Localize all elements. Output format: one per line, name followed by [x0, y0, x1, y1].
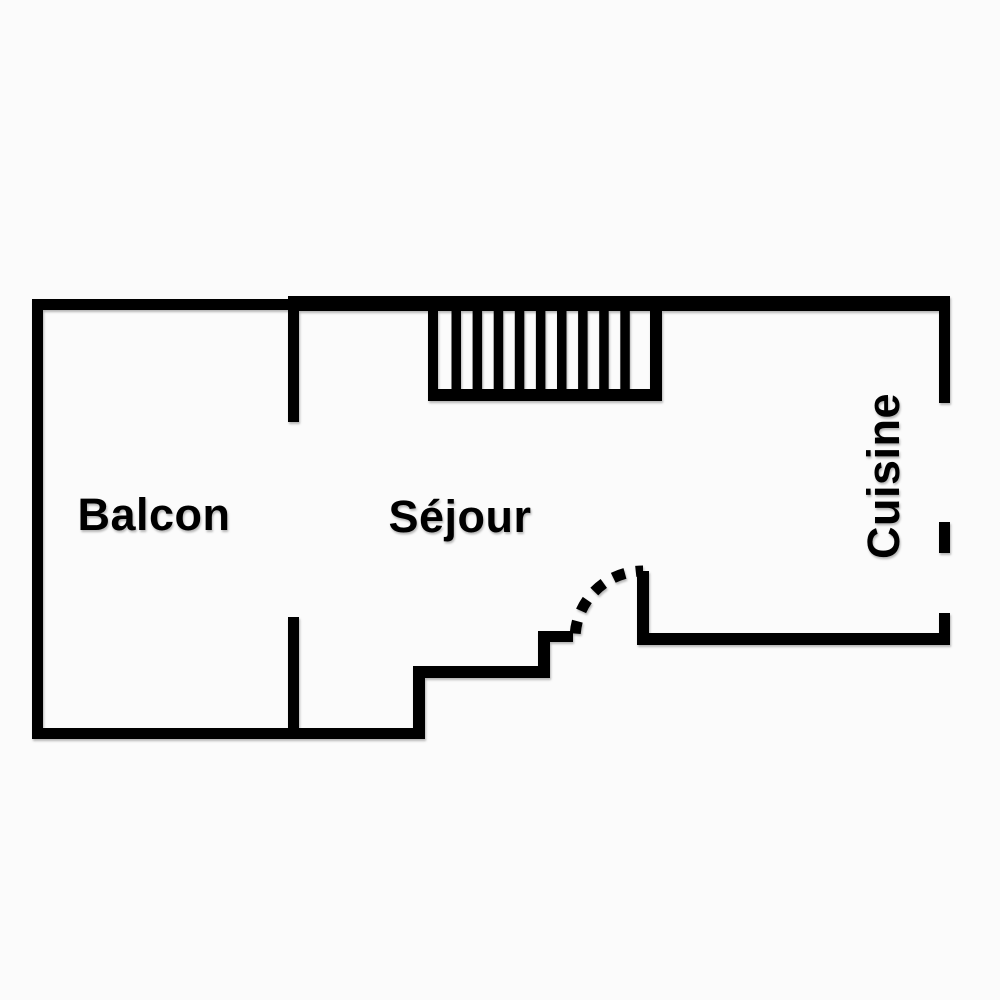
floor-plan-walls: Balcon Séjour Cuisine — [32, 296, 950, 739]
bottom-wall-right — [637, 633, 950, 645]
door-swing-arc — [575, 571, 643, 639]
room-label-sejour: Séjour — [388, 491, 531, 542]
room-label-balcon: Balcon — [77, 489, 230, 540]
step-wall-horizontal-upper — [538, 631, 573, 642]
room-label-cuisine: Cuisine — [858, 393, 909, 559]
divider-wall-lower — [288, 617, 299, 739]
stair-tread — [599, 311, 609, 389]
left-wall — [32, 299, 43, 739]
right-wall-upper — [939, 296, 950, 403]
stair-tread — [452, 311, 462, 389]
staircase — [428, 311, 662, 401]
floor-plan-page: Balcon Séjour Cuisine — [0, 0, 1000, 1000]
right-wall-window-stub — [939, 522, 950, 553]
stair-tread — [536, 311, 546, 389]
balcon-top-wall — [32, 299, 299, 310]
step-wall-horizontal-lower — [413, 666, 550, 678]
stair-right-edge — [650, 311, 662, 401]
floor-plan-drawing: Balcon Séjour Cuisine — [0, 0, 1000, 1000]
stair-tread — [494, 311, 504, 389]
stair-left-edge — [428, 311, 438, 401]
stair-tread — [620, 311, 630, 389]
main-top-wall — [288, 296, 950, 311]
stair-tread — [578, 311, 588, 389]
stair-bottom-edge — [428, 389, 662, 401]
stair-tread — [473, 311, 483, 389]
bottom-wall-left — [32, 728, 425, 739]
right-wall-lower — [939, 613, 950, 645]
staircase-treads — [452, 311, 630, 389]
stair-tread — [557, 311, 567, 389]
divider-wall-upper — [288, 299, 299, 422]
stair-tread — [515, 311, 525, 389]
